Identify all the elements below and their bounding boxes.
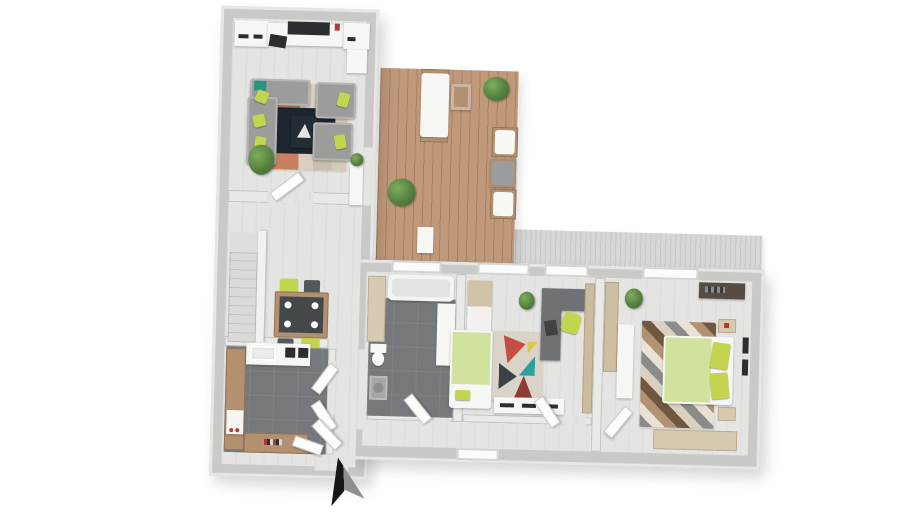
drawer-handle [500,403,514,407]
geometric-rug [492,331,544,402]
rug-triangle-teal [519,356,536,376]
window-bedroom2 [477,262,529,275]
cooktop-burner [285,347,295,357]
cooktop-burner [298,348,308,358]
washing-machine [369,376,388,400]
red-vase [335,24,340,31]
staircase [228,252,258,343]
utensils [264,439,282,445]
nightstand [718,319,736,333]
deck-wall-sideboard [349,165,363,205]
deck-armchair [490,189,517,220]
kitchen-counter-top [246,342,311,366]
kitchen-counter-left [224,348,247,450]
deck-side-table [451,84,472,111]
books-icon [238,34,248,38]
red-decor [724,323,729,328]
washer-door [373,383,383,393]
bathroom-tall-cabinet [367,276,387,342]
media-shelf-right [343,23,370,50]
bathtub-basin [392,278,450,298]
floor-plan-screenshot [0,0,920,518]
lime-pillow [336,92,350,108]
bed-pillow [710,372,730,399]
armchair [315,82,356,119]
kitchen-appliance [226,410,244,434]
single-bed-duvet [451,332,490,385]
drawer-handle [522,404,536,408]
lime-pillow [334,134,347,150]
armchair [312,122,353,161]
deck-coffee-table [490,159,517,188]
nightstand [718,407,736,421]
rug-triangle-darkred [514,375,533,397]
bathtub [388,274,455,302]
deck-armchair [491,127,518,158]
master-dresser [616,324,634,398]
media-shelf-left [234,20,269,47]
double-bed-duvet [664,337,712,402]
lounger-frame-bottom [420,137,448,143]
cabinet-right-wall [347,49,368,74]
rug-triangle-charcoal [498,363,517,389]
dining-table [274,291,329,338]
bed-pillow [709,342,731,370]
books-icon [347,37,355,41]
deck-door-opening [362,147,376,205]
wall-frame [742,359,748,375]
armchair-cushion [495,130,516,155]
window-master [642,267,698,280]
two-tone-wardrobe [467,280,492,333]
rug-triangle-yellow [527,342,537,354]
armchair-cushion [493,192,514,217]
tv [288,21,330,35]
single-bed-pillow [455,390,470,400]
books-icon [253,35,262,39]
stove-knob [229,428,233,432]
sail-motif-icon [297,124,311,138]
window-bottom [457,448,499,461]
wall-frame [742,337,748,353]
vanity-desk [699,282,745,299]
stove-knob [235,428,239,432]
laptop [269,34,288,49]
window-bathroom [391,260,441,273]
deck-storage-box [417,227,434,253]
rug-triangle-red [503,335,526,364]
floor-plan [0,0,920,518]
sun-lounger [420,73,450,138]
desk-chair-dark [544,320,558,337]
stair-landing [230,232,259,253]
sink [250,346,276,362]
vanity-items [705,286,725,293]
window-office [544,264,588,277]
bedroom-bench [653,429,737,451]
